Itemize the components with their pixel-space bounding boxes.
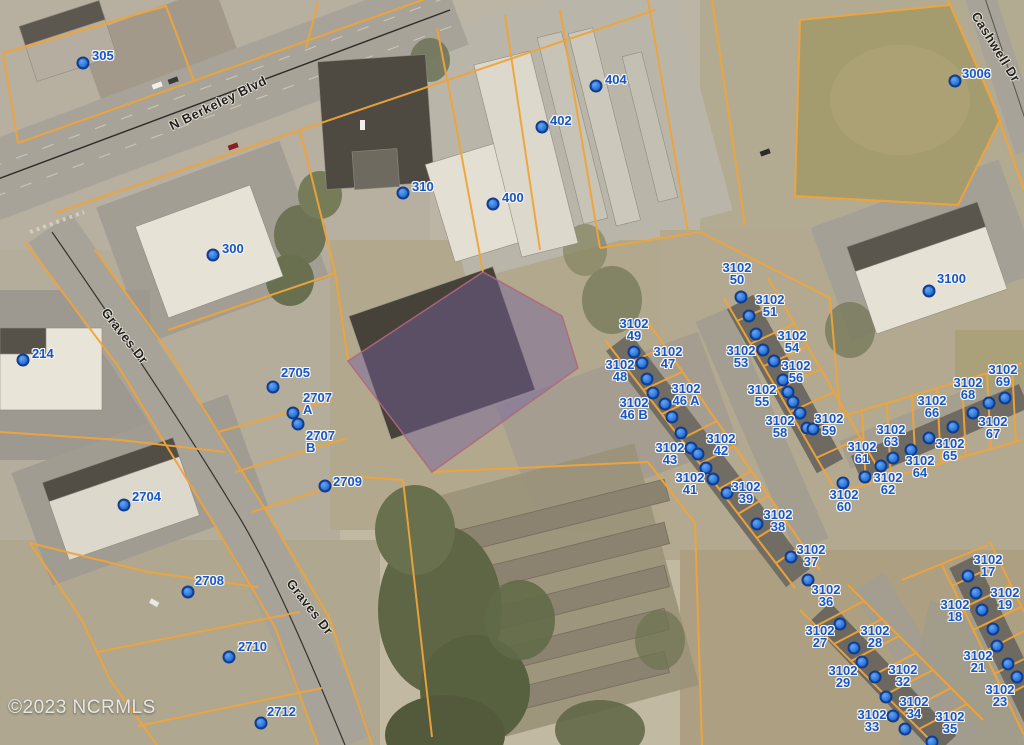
street-label: N Berkeley Blvd — [167, 73, 269, 133]
parcel-label[interactable]: 310253 — [727, 345, 756, 369]
parcel-label[interactable]: 2707B — [306, 430, 335, 454]
parcel-dot[interactable] — [675, 427, 688, 440]
parcel-dot[interactable] — [751, 518, 764, 531]
parcel-label[interactable]: 305 — [92, 50, 114, 62]
parcel-dot[interactable] — [880, 691, 893, 704]
parcel-label[interactable]: 310249 — [620, 318, 649, 342]
parcel-label[interactable]: 310265 — [936, 438, 965, 462]
parcel-label[interactable]: 3006 — [962, 68, 991, 80]
parcel-dot[interactable] — [1002, 658, 1015, 671]
parcel-label[interactable]: 214 — [32, 348, 54, 360]
parcel-label[interactable]: 310 — [412, 181, 434, 193]
parcel-label[interactable]: 310262 — [874, 472, 903, 496]
parcel-label[interactable]: 310219 — [991, 587, 1020, 611]
parcel-label[interactable]: 310237 — [797, 544, 826, 568]
parcel-label[interactable]: 310264 — [906, 455, 935, 479]
parcel-label[interactable]: 310239 — [732, 481, 761, 505]
parcel-label[interactable]: 402 — [550, 115, 572, 127]
parcel-label[interactable]: 310242 — [707, 433, 736, 457]
parcel-dot[interactable] — [223, 651, 236, 664]
parcel-dot[interactable] — [947, 421, 960, 434]
parcel-label[interactable]: 310254 — [778, 330, 807, 354]
parcel-dot[interactable] — [834, 618, 847, 631]
parcel-label[interactable]: 310217 — [974, 554, 1003, 578]
parcel-dot[interactable] — [983, 397, 996, 410]
parcel-label[interactable]: 300 — [222, 243, 244, 255]
parcel-label[interactable]: 310241 — [676, 472, 705, 496]
parcel-label[interactable]: 310218 — [941, 599, 970, 623]
parcel-label[interactable]: 310229 — [829, 665, 858, 689]
parcel-dot[interactable] — [292, 418, 305, 431]
parcel-label[interactable]: 310267 — [979, 416, 1008, 440]
parcel-label[interactable]: 310234 — [900, 696, 929, 720]
parcel-label[interactable]: 310266 — [918, 395, 947, 419]
parcel-dot[interactable] — [750, 328, 763, 341]
parcel-dot[interactable] — [692, 448, 705, 461]
parcel-label[interactable]: 404 — [605, 74, 627, 86]
parcel-dot[interactable] — [869, 671, 882, 684]
parcel-dot[interactable] — [207, 249, 220, 262]
parcel-dot[interactable] — [976, 604, 989, 617]
parcel-dot[interactable] — [743, 310, 756, 323]
parcel-label[interactable]: 310223 — [986, 684, 1015, 708]
parcel-label[interactable]: 310227 — [806, 625, 835, 649]
parcel-label[interactable]: 310255 — [748, 384, 777, 408]
parcel-label[interactable]: 2712 — [267, 706, 296, 718]
parcel-label[interactable]: 310250 — [723, 262, 752, 286]
parcel-label[interactable]: 310251 — [756, 294, 785, 318]
parcel-label[interactable]: 310243 — [656, 442, 685, 466]
parcel-dot[interactable] — [77, 57, 90, 70]
parcel-label[interactable]: 2708 — [195, 575, 224, 587]
parcel-dot[interactable] — [118, 499, 131, 512]
parcel-dot[interactable] — [590, 80, 603, 93]
parcel-dot[interactable] — [757, 344, 770, 357]
marker-layer: 305310402404400300630021427052707A2707B2… — [0, 0, 1024, 745]
parcel-label[interactable]: 310258 — [766, 415, 795, 439]
parcel-dot[interactable] — [923, 285, 936, 298]
parcel-label[interactable]: 2709 — [333, 476, 362, 488]
parcel-dot[interactable] — [487, 198, 500, 211]
parcel-label[interactable]: 310268 — [954, 377, 983, 401]
parcel-dot[interactable] — [636, 357, 649, 370]
parcel-label[interactable]: 2707A — [303, 392, 332, 416]
street-label: Graves Dr — [284, 576, 337, 638]
parcel-dot[interactable] — [17, 354, 30, 367]
parcel-dot[interactable] — [949, 75, 962, 88]
parcel-label[interactable]: 310246 A — [672, 383, 701, 407]
parcel-label[interactable]: 400 — [502, 192, 524, 204]
parcel-label[interactable]: 310261 — [848, 441, 877, 465]
parcel-dot[interactable] — [319, 480, 332, 493]
parcel-dot[interactable] — [794, 407, 807, 420]
parcel-dot[interactable] — [707, 473, 720, 486]
parcel-dot[interactable] — [182, 586, 195, 599]
parcel-label[interactable]: 310246 B — [620, 397, 649, 421]
parcel-label[interactable]: 310236 — [812, 584, 841, 608]
parcel-label[interactable]: 2704 — [132, 491, 161, 503]
parcel-label[interactable]: 310228 — [861, 625, 890, 649]
parcel-label[interactable]: 310232 — [889, 664, 918, 688]
parcel-label[interactable]: 310269 — [989, 364, 1018, 388]
parcel-label[interactable]: 310238 — [764, 509, 793, 533]
parcel-dot[interactable] — [987, 623, 1000, 636]
parcel-dot[interactable] — [666, 411, 679, 424]
parcel-dot[interactable] — [859, 471, 872, 484]
parcel-label[interactable]: 2705 — [281, 367, 310, 379]
parcel-label[interactable]: 310247 — [654, 346, 683, 370]
parcel-label[interactable]: 310256 — [782, 360, 811, 384]
parcel-label[interactable]: 310235 — [936, 711, 965, 735]
copyright-watermark: ©2023 NCRMLS — [8, 697, 156, 719]
parcel-dot[interactable] — [735, 291, 748, 304]
parcel-dot[interactable] — [899, 723, 912, 736]
parcel-dot[interactable] — [848, 642, 861, 655]
parcel-dot[interactable] — [887, 710, 900, 723]
aerial-parcel-map[interactable]: 305310402404400300630021427052707A2707B2… — [0, 0, 1024, 745]
parcel-dot[interactable] — [999, 392, 1012, 405]
parcel-dot[interactable] — [768, 355, 781, 368]
parcel-label[interactable]: 310221 — [964, 650, 993, 674]
parcel-label[interactable]: 3100 — [937, 273, 966, 285]
parcel-dot[interactable] — [255, 717, 268, 730]
parcel-label[interactable]: 310260 — [830, 489, 859, 513]
parcel-dot[interactable] — [659, 398, 672, 411]
parcel-label[interactable]: 310248 — [606, 359, 635, 383]
parcel-dot[interactable] — [536, 121, 549, 134]
parcel-label[interactable]: 310233 — [858, 709, 887, 733]
parcel-label[interactable]: 2710 — [238, 641, 267, 653]
street-label: Graves Dr — [99, 305, 152, 367]
parcel-dot[interactable] — [267, 381, 280, 394]
parcel-dot[interactable] — [926, 736, 939, 745]
parcel-label[interactable]: 310259 — [815, 413, 844, 437]
parcel-label[interactable]: 310263 — [877, 424, 906, 448]
parcel-dot[interactable] — [923, 432, 936, 445]
parcel-dot[interactable] — [397, 187, 410, 200]
parcel-dot[interactable] — [970, 587, 983, 600]
parcel-dot[interactable] — [641, 373, 654, 386]
parcel-dot[interactable] — [887, 452, 900, 465]
